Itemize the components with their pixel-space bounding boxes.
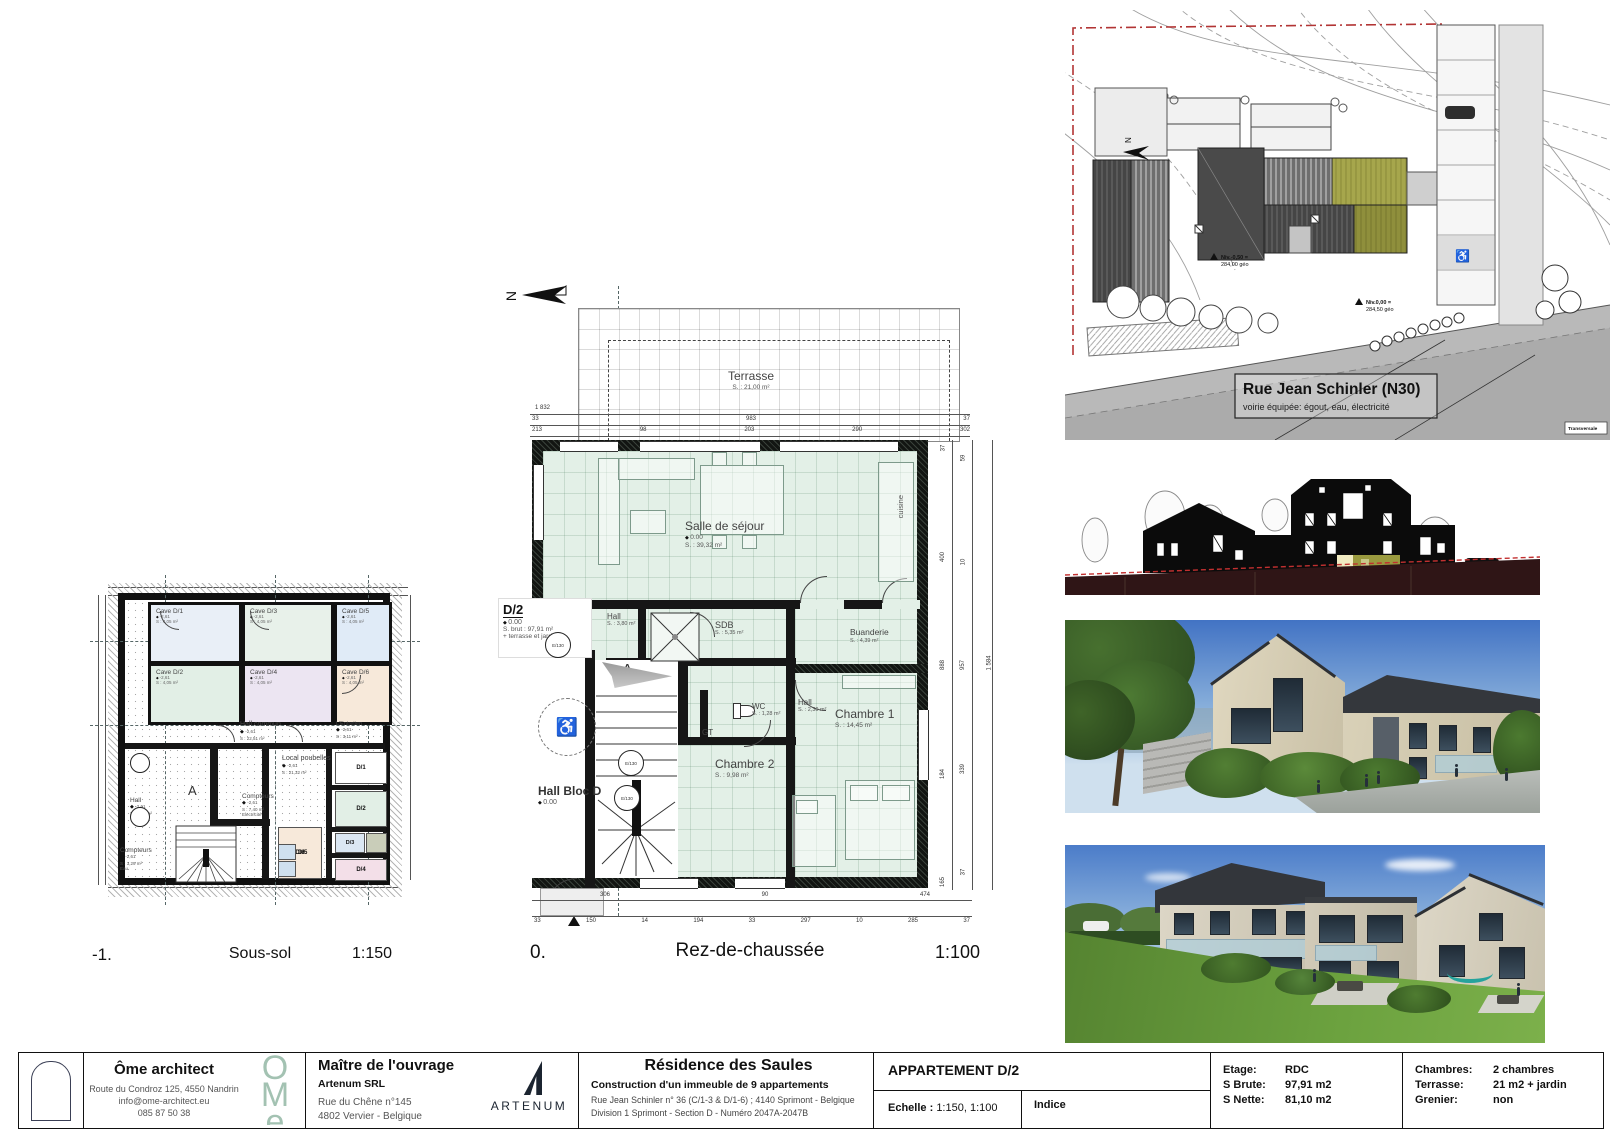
artenum-logo-icon bbox=[516, 1061, 542, 1095]
sofa-icon bbox=[598, 458, 620, 565]
svg-text:Niv.-0,50 =: Niv.-0,50 = bbox=[1221, 255, 1248, 261]
room-sub: Electricité bbox=[242, 812, 274, 817]
dim-numbers: 3398337 bbox=[532, 416, 970, 422]
room-label: Local poubelles bbox=[282, 755, 331, 763]
title-block: Ôme architect Route du Condroz 125, 4550… bbox=[18, 1052, 1604, 1129]
room-surface: S. : 4,39 m² bbox=[850, 638, 889, 644]
snette-value: 81,10 m2 bbox=[1285, 1093, 1393, 1108]
annex-dark bbox=[1093, 160, 1131, 302]
window bbox=[560, 441, 618, 452]
room-label: Buanderie bbox=[850, 628, 889, 638]
room-sejour: Salle de séjour 0.00 S. : 39,32 m² bbox=[685, 520, 764, 549]
lift-marker: E/130 bbox=[618, 750, 644, 776]
annex-dark bbox=[1131, 160, 1169, 302]
room-label: Hall bbox=[130, 797, 152, 804]
room-cuisine-label: cuisine bbox=[896, 495, 905, 518]
room-label: Terrasse bbox=[728, 370, 774, 384]
room-label: Hall bbox=[798, 698, 826, 707]
window bbox=[640, 441, 760, 452]
client-heading: Maître de l'ouvrage bbox=[318, 1057, 454, 1074]
gt-label: GT bbox=[702, 728, 713, 737]
storage-chip bbox=[366, 833, 387, 853]
svg-text:voirie équipée: égout, eau, él: voirie équipée: égout, eau, électricité bbox=[1243, 402, 1390, 412]
cell-d4: D/4 bbox=[335, 859, 387, 881]
project-cadastre: Division 1 Sprimont - Section D - Numéro… bbox=[591, 1107, 866, 1120]
basement-stairs-icon bbox=[175, 825, 237, 883]
wall bbox=[332, 785, 386, 790]
person bbox=[1455, 768, 1458, 777]
room-compteurs-eau: Compteurs -2,61 S : 3,29 m² Eau bbox=[120, 847, 152, 872]
car-icon bbox=[1445, 106, 1475, 119]
room-surface: S. : 3,80 m² bbox=[607, 621, 635, 627]
dim-total: 1 584 bbox=[987, 655, 993, 670]
project-title: Résidence des Saules bbox=[591, 1057, 866, 1075]
coffee-table-icon bbox=[630, 510, 666, 534]
sbrute-value: 97,91 m2 bbox=[1285, 1078, 1393, 1093]
room-buanderie: Buanderie S. : 4,39 m² bbox=[850, 628, 889, 644]
room-chambre1: Chambre 1 S. : 14,45 m² bbox=[835, 708, 894, 729]
drawing-sheet: Cave D/1 -2,61 S : 4,05 m² Cave D/3 -2,6… bbox=[0, 0, 1620, 1146]
room-surface: S. : 5,35 m² bbox=[715, 630, 743, 636]
meter-symbol bbox=[130, 807, 150, 827]
wardrobe-icon bbox=[842, 675, 916, 689]
room-label: Chambre 1 bbox=[835, 708, 894, 722]
room-sub: Eau bbox=[120, 866, 152, 871]
svg-text:Niv.0,00 =: Niv.0,00 = bbox=[1366, 300, 1391, 306]
room-cave-d4: Cave D/4 -2,61 S : 4,05 m² bbox=[242, 663, 334, 725]
wall bbox=[210, 743, 218, 823]
wall bbox=[585, 650, 595, 888]
annex-light bbox=[1095, 88, 1167, 156]
room-cave-d5: Cave D/5 -2,61 S : 4,05 m² bbox=[334, 602, 392, 664]
meter-symbol bbox=[130, 753, 150, 773]
room-surface: S : 3,11 m² bbox=[336, 734, 362, 739]
pillow-icon bbox=[796, 800, 818, 814]
svg-text:284,50 géo: 284,50 géo bbox=[1366, 307, 1394, 313]
project-cell: Résidence des Saules Construction d'un i… bbox=[579, 1053, 874, 1128]
room-hall-bloc-d: Hall Bloc D 0.00 bbox=[538, 785, 601, 807]
grenier-value: non bbox=[1493, 1093, 1600, 1108]
window bbox=[1231, 708, 1271, 744]
dim-numbers: 1 832 bbox=[535, 405, 595, 411]
indice-label: Indice bbox=[1034, 1099, 1066, 1111]
apartment-title: APPARTEMENT D/2 bbox=[888, 1062, 1019, 1078]
wall bbox=[332, 853, 386, 858]
person bbox=[1365, 778, 1368, 787]
artenum-logo: ARTENUM bbox=[490, 1061, 568, 1113]
window bbox=[1273, 678, 1303, 732]
room-label: Hall Bloc D bbox=[538, 785, 601, 799]
svg-text:Transversale: Transversale bbox=[1568, 426, 1598, 432]
corner-label: Transversale bbox=[1565, 422, 1607, 434]
room-compteurs-elec: Compteurs -2,61 S : 7,40 m² Electricité bbox=[242, 793, 274, 818]
room-level: -2,61 bbox=[120, 854, 152, 861]
person bbox=[1505, 772, 1508, 781]
soussol-title: Sous-sol bbox=[160, 945, 360, 963]
project-address: Rue Jean Schinler n° 36 (C/1-3 & D/1-6) … bbox=[591, 1094, 866, 1107]
dim-numbers: 21398203290302 bbox=[532, 427, 970, 433]
cell-d3: D/3 bbox=[335, 833, 365, 853]
sofa-icon bbox=[618, 458, 695, 480]
kitchen-counter-icon bbox=[878, 462, 914, 582]
room-surface: S : 4,05 m² bbox=[250, 681, 331, 686]
architect-address: Route du Condroz 125, 4550 Nandrin bbox=[84, 1083, 244, 1095]
wall bbox=[795, 664, 928, 673]
etage-label: Etage: bbox=[1223, 1063, 1285, 1078]
cyclist bbox=[1317, 784, 1320, 793]
north-label: N bbox=[503, 291, 519, 301]
unit-id: D/2 bbox=[503, 602, 523, 618]
cell-d2: D/2 bbox=[335, 791, 387, 827]
svg-text:Rue Jean Schinler (N30): Rue Jean Schinler (N30) bbox=[1243, 381, 1420, 398]
room-cave-d6: Cave D/6 -2,61 S : 4,05 m² bbox=[334, 663, 392, 725]
room-level: -2,61 bbox=[336, 727, 362, 734]
lift-marker: E/130 bbox=[545, 632, 571, 658]
pillow-icon bbox=[882, 785, 910, 801]
unit-level: 0.00 bbox=[503, 619, 591, 626]
site-plan: Niv.-0,50 = 284,00 géo Niv.0,00 = 284,50… bbox=[1065, 10, 1610, 440]
snette-label: S Nette: bbox=[1223, 1093, 1285, 1108]
room-level: 0.00 bbox=[538, 799, 601, 807]
dim-line bbox=[98, 595, 99, 885]
rdc-id: 0. bbox=[530, 942, 546, 964]
cell-d1: D/1 bbox=[335, 752, 387, 784]
window bbox=[735, 878, 785, 889]
lift-marker: E/130 bbox=[614, 785, 640, 811]
client-name: Artenum SRL bbox=[318, 1078, 454, 1090]
soussol-id: -1. bbox=[92, 945, 112, 965]
render-street-view bbox=[1065, 620, 1540, 813]
dim-numbers: 3315014194332971028537 bbox=[534, 918, 970, 924]
render-garden-view bbox=[1065, 845, 1545, 1043]
room-level: 0.00 bbox=[685, 534, 764, 542]
room-level: -2,61 bbox=[242, 800, 274, 807]
room-label: WC bbox=[752, 702, 780, 711]
room-label: Hall commun bbox=[240, 721, 281, 729]
room-surface: S. : 21,00 m² bbox=[728, 384, 774, 391]
room-hall1: Hall S. : 3,80 m² bbox=[607, 612, 635, 628]
person bbox=[1313, 973, 1316, 982]
room-label: Compteurs bbox=[242, 793, 274, 800]
parking: ♿ bbox=[1437, 25, 1543, 325]
wall bbox=[638, 609, 646, 661]
chambres-label: Chambres: bbox=[1415, 1063, 1493, 1078]
wheelchair-clearance: ♿ bbox=[538, 698, 596, 756]
architect-email: info@ome-architect.eu bbox=[84, 1095, 244, 1107]
balcony-glass bbox=[1315, 945, 1377, 961]
wall bbox=[678, 650, 688, 745]
room-surface: S. : 39,32 m² bbox=[685, 542, 764, 549]
car-icon bbox=[1083, 921, 1109, 931]
project-subtitle: Construction d'un immeuble de 9 appartem… bbox=[591, 1079, 866, 1091]
person bbox=[1517, 987, 1520, 996]
person bbox=[1377, 775, 1380, 784]
terrasse-value: 21 m2 + jardin bbox=[1493, 1078, 1600, 1093]
dim-numbers: 591095733937 bbox=[958, 455, 968, 875]
window bbox=[640, 878, 698, 889]
surfaces-cell: Etage:RDC S Brute:97,91 m2 S Nette:81,10… bbox=[1211, 1053, 1403, 1128]
toilet-icon bbox=[733, 703, 741, 719]
chambres-value: 2 chambres bbox=[1493, 1063, 1600, 1078]
room-surface: S : 21,32 m² bbox=[282, 770, 331, 775]
room-hall-commun: Hall commun -2,61 S : 22,51 m² bbox=[240, 721, 281, 741]
hall-bloc-floor bbox=[532, 650, 585, 878]
room-level: -2,61 bbox=[282, 763, 331, 770]
features-cell: Chambres:2 chambres Terrasse:21 m2 + jar… bbox=[1403, 1053, 1603, 1128]
dim-numbers: 37400888184165 bbox=[938, 445, 948, 885]
etage-value: RDC bbox=[1285, 1063, 1393, 1078]
artenum-logo-text: ARTENUM bbox=[490, 1099, 568, 1113]
room-cave-d2: Cave D/2 -2,61 S : 4,05 m² bbox=[148, 663, 242, 725]
sbrute-label: S Brute: bbox=[1223, 1078, 1285, 1093]
dim-line bbox=[410, 595, 411, 880]
room-entretien: L'Entretien -2,61 S : 3,11 m² bbox=[336, 721, 362, 739]
entrance-step bbox=[540, 888, 604, 916]
wall bbox=[565, 600, 920, 609]
room-terrasse: Terrasse S. : 21,00 m² bbox=[728, 370, 774, 391]
wheelchair-icon: ♿ bbox=[556, 717, 578, 738]
room-sdb: SDB S. : 5,35 m² bbox=[715, 620, 743, 637]
soussol-scale: 1:150 bbox=[352, 945, 392, 963]
room-surface: S : 4,05 m² bbox=[156, 681, 239, 686]
room-label: Hall bbox=[607, 612, 635, 621]
unit-surface: S. brut : 97,91 m² bbox=[503, 626, 591, 633]
dim-numbers: 30690474 bbox=[600, 892, 930, 898]
room-chambre2: Chambre 2 S. : 9,98 m² bbox=[715, 758, 774, 779]
room-surface: S : 4,05 m² bbox=[342, 620, 389, 625]
elevation-drawing bbox=[1065, 455, 1540, 595]
dim-line bbox=[105, 595, 106, 885]
window bbox=[918, 710, 929, 780]
rdc-title: Rez-de-chaussée bbox=[600, 940, 900, 962]
room-label: SDB bbox=[715, 620, 743, 630]
cloud bbox=[1385, 859, 1455, 871]
wheelchair-icon: ♿ bbox=[1455, 249, 1470, 263]
north-arrow-icon bbox=[520, 284, 568, 306]
client-cell: Maître de l'ouvrage Artenum SRL Rue du C… bbox=[306, 1053, 579, 1128]
ome-logo: ÔMe bbox=[245, 1055, 303, 1125]
room-surface: S. : 9,98 m² bbox=[715, 772, 774, 779]
section-marker-a: A bbox=[188, 783, 197, 798]
arch-logo-icon bbox=[31, 1061, 71, 1121]
garden-table bbox=[1337, 981, 1363, 991]
scale-label: Echelle : bbox=[888, 1102, 933, 1114]
architect-phone: 085 87 50 38 bbox=[84, 1107, 244, 1119]
architect-name: Ôme architect bbox=[84, 1061, 244, 1078]
svg-text:N: N bbox=[1124, 137, 1133, 143]
chair-icon bbox=[712, 452, 727, 466]
room-level: -2,61 bbox=[240, 729, 281, 736]
window bbox=[533, 465, 544, 540]
room-label: Salle de séjour bbox=[685, 520, 764, 534]
room-wc: WC S. : 1,28 m² bbox=[752, 702, 780, 718]
balcony-glass bbox=[1435, 755, 1497, 773]
room-hall2: Hall S. : 2,30 m² bbox=[798, 698, 826, 714]
architect-cell: Ôme architect Route du Condroz 125, 4550… bbox=[84, 1053, 306, 1128]
garden-table bbox=[1497, 995, 1519, 1004]
hammock bbox=[1447, 963, 1493, 983]
client-address1: Rue du Chêne n°145 bbox=[318, 1096, 454, 1110]
room-surface: S. : 1,28 m² bbox=[752, 711, 780, 717]
rdc-scale: 1:100 bbox=[935, 942, 980, 963]
room-label: Chambre 2 bbox=[715, 758, 774, 772]
apartment-cell: APPARTEMENT D/2 Echelle : 1:150, 1:100 I… bbox=[874, 1053, 1211, 1128]
room-local-poubelles: Local poubelles -2,61 S : 21,32 m² bbox=[282, 755, 331, 775]
pillow-icon bbox=[850, 785, 878, 801]
plan-sous-sol: Cave D/1 -2,61 S : 4,05 m² Cave D/3 -2,6… bbox=[90, 575, 420, 905]
room-label: Compteurs bbox=[120, 847, 152, 854]
terrasse-label: Terrasse: bbox=[1415, 1078, 1493, 1093]
chair-icon bbox=[742, 452, 757, 466]
grenier-label: Grenier: bbox=[1415, 1093, 1493, 1108]
client-address2: 4802 Vervier - Belgique bbox=[318, 1110, 454, 1124]
plan-rdc: N Terrasse S. : 21,00 m² 1 832 3398337 2… bbox=[490, 280, 1020, 930]
room-surface: S. : 14,45 m² bbox=[835, 722, 894, 729]
architect-logo-cell bbox=[19, 1053, 84, 1128]
wall bbox=[332, 827, 386, 832]
svg-text:284,00 géo: 284,00 géo bbox=[1221, 262, 1249, 268]
window bbox=[780, 441, 898, 452]
wall bbox=[125, 743, 385, 749]
stairs-icon bbox=[596, 680, 677, 876]
room-surface: S : 22,51 m² bbox=[240, 736, 281, 741]
street-label: Rue Jean Schinler (N30) voirie équipée: … bbox=[1235, 374, 1437, 418]
scale-value: 1:150, 1:100 bbox=[936, 1102, 997, 1114]
room-surface: S. : 2,30 m² bbox=[798, 707, 826, 713]
